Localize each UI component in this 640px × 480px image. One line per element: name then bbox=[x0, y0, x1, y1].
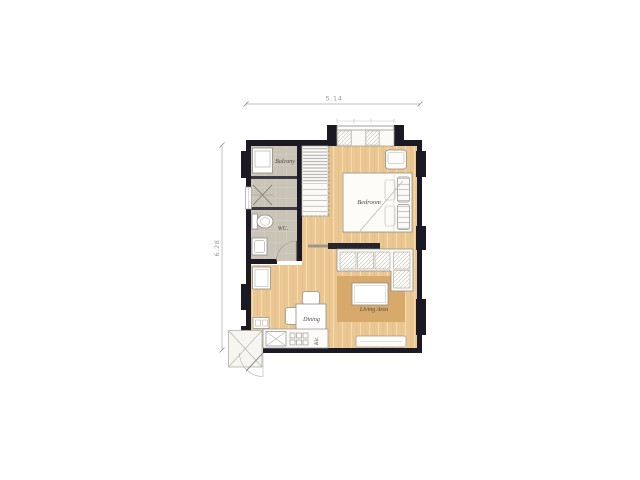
living-area-label: Living Area bbox=[359, 307, 388, 313]
bath-divider-wall bbox=[251, 207, 297, 210]
dining-label: Dining bbox=[302, 317, 320, 323]
balcony-divider-wall bbox=[251, 176, 297, 179]
bathroom-sink bbox=[252, 238, 267, 255]
balcony-label: Balcony bbox=[275, 159, 295, 165]
wc-label: WC. bbox=[278, 226, 289, 232]
floorplan-page: Balcony WC. Bedroom bbox=[0, 0, 640, 480]
tv-cabinet bbox=[356, 336, 406, 347]
wardrobe bbox=[302, 146, 329, 216]
width-dimension-label: 5.14 bbox=[326, 95, 343, 103]
washing-machine bbox=[253, 148, 273, 173]
kitchen-sink bbox=[266, 332, 286, 347]
toilet bbox=[252, 214, 273, 229]
partition-panel bbox=[328, 243, 380, 249]
width-dimension: 5.14 bbox=[244, 95, 423, 110]
partition-rail bbox=[308, 245, 328, 248]
window-seat-cabinet bbox=[337, 130, 394, 146]
coffee-table bbox=[352, 283, 388, 305]
floorplan-drawing: Balcony WC. Bedroom bbox=[0, 0, 640, 480]
dining-chair-top bbox=[303, 292, 320, 305]
service-shaft bbox=[229, 331, 263, 368]
height-dimension-label: 6.28 bbox=[213, 240, 221, 257]
kitchen-cabinet bbox=[253, 318, 269, 329]
window-dimension-ticks bbox=[337, 119, 394, 124]
height-dimension: 6.28 bbox=[213, 143, 225, 353]
fridge bbox=[253, 267, 271, 289]
kitchen-label: Kit. bbox=[314, 337, 320, 346]
bedroom-label: Bedroom bbox=[357, 199, 381, 206]
bedroom-chair bbox=[386, 150, 407, 169]
balcony-side-window bbox=[246, 187, 252, 209]
